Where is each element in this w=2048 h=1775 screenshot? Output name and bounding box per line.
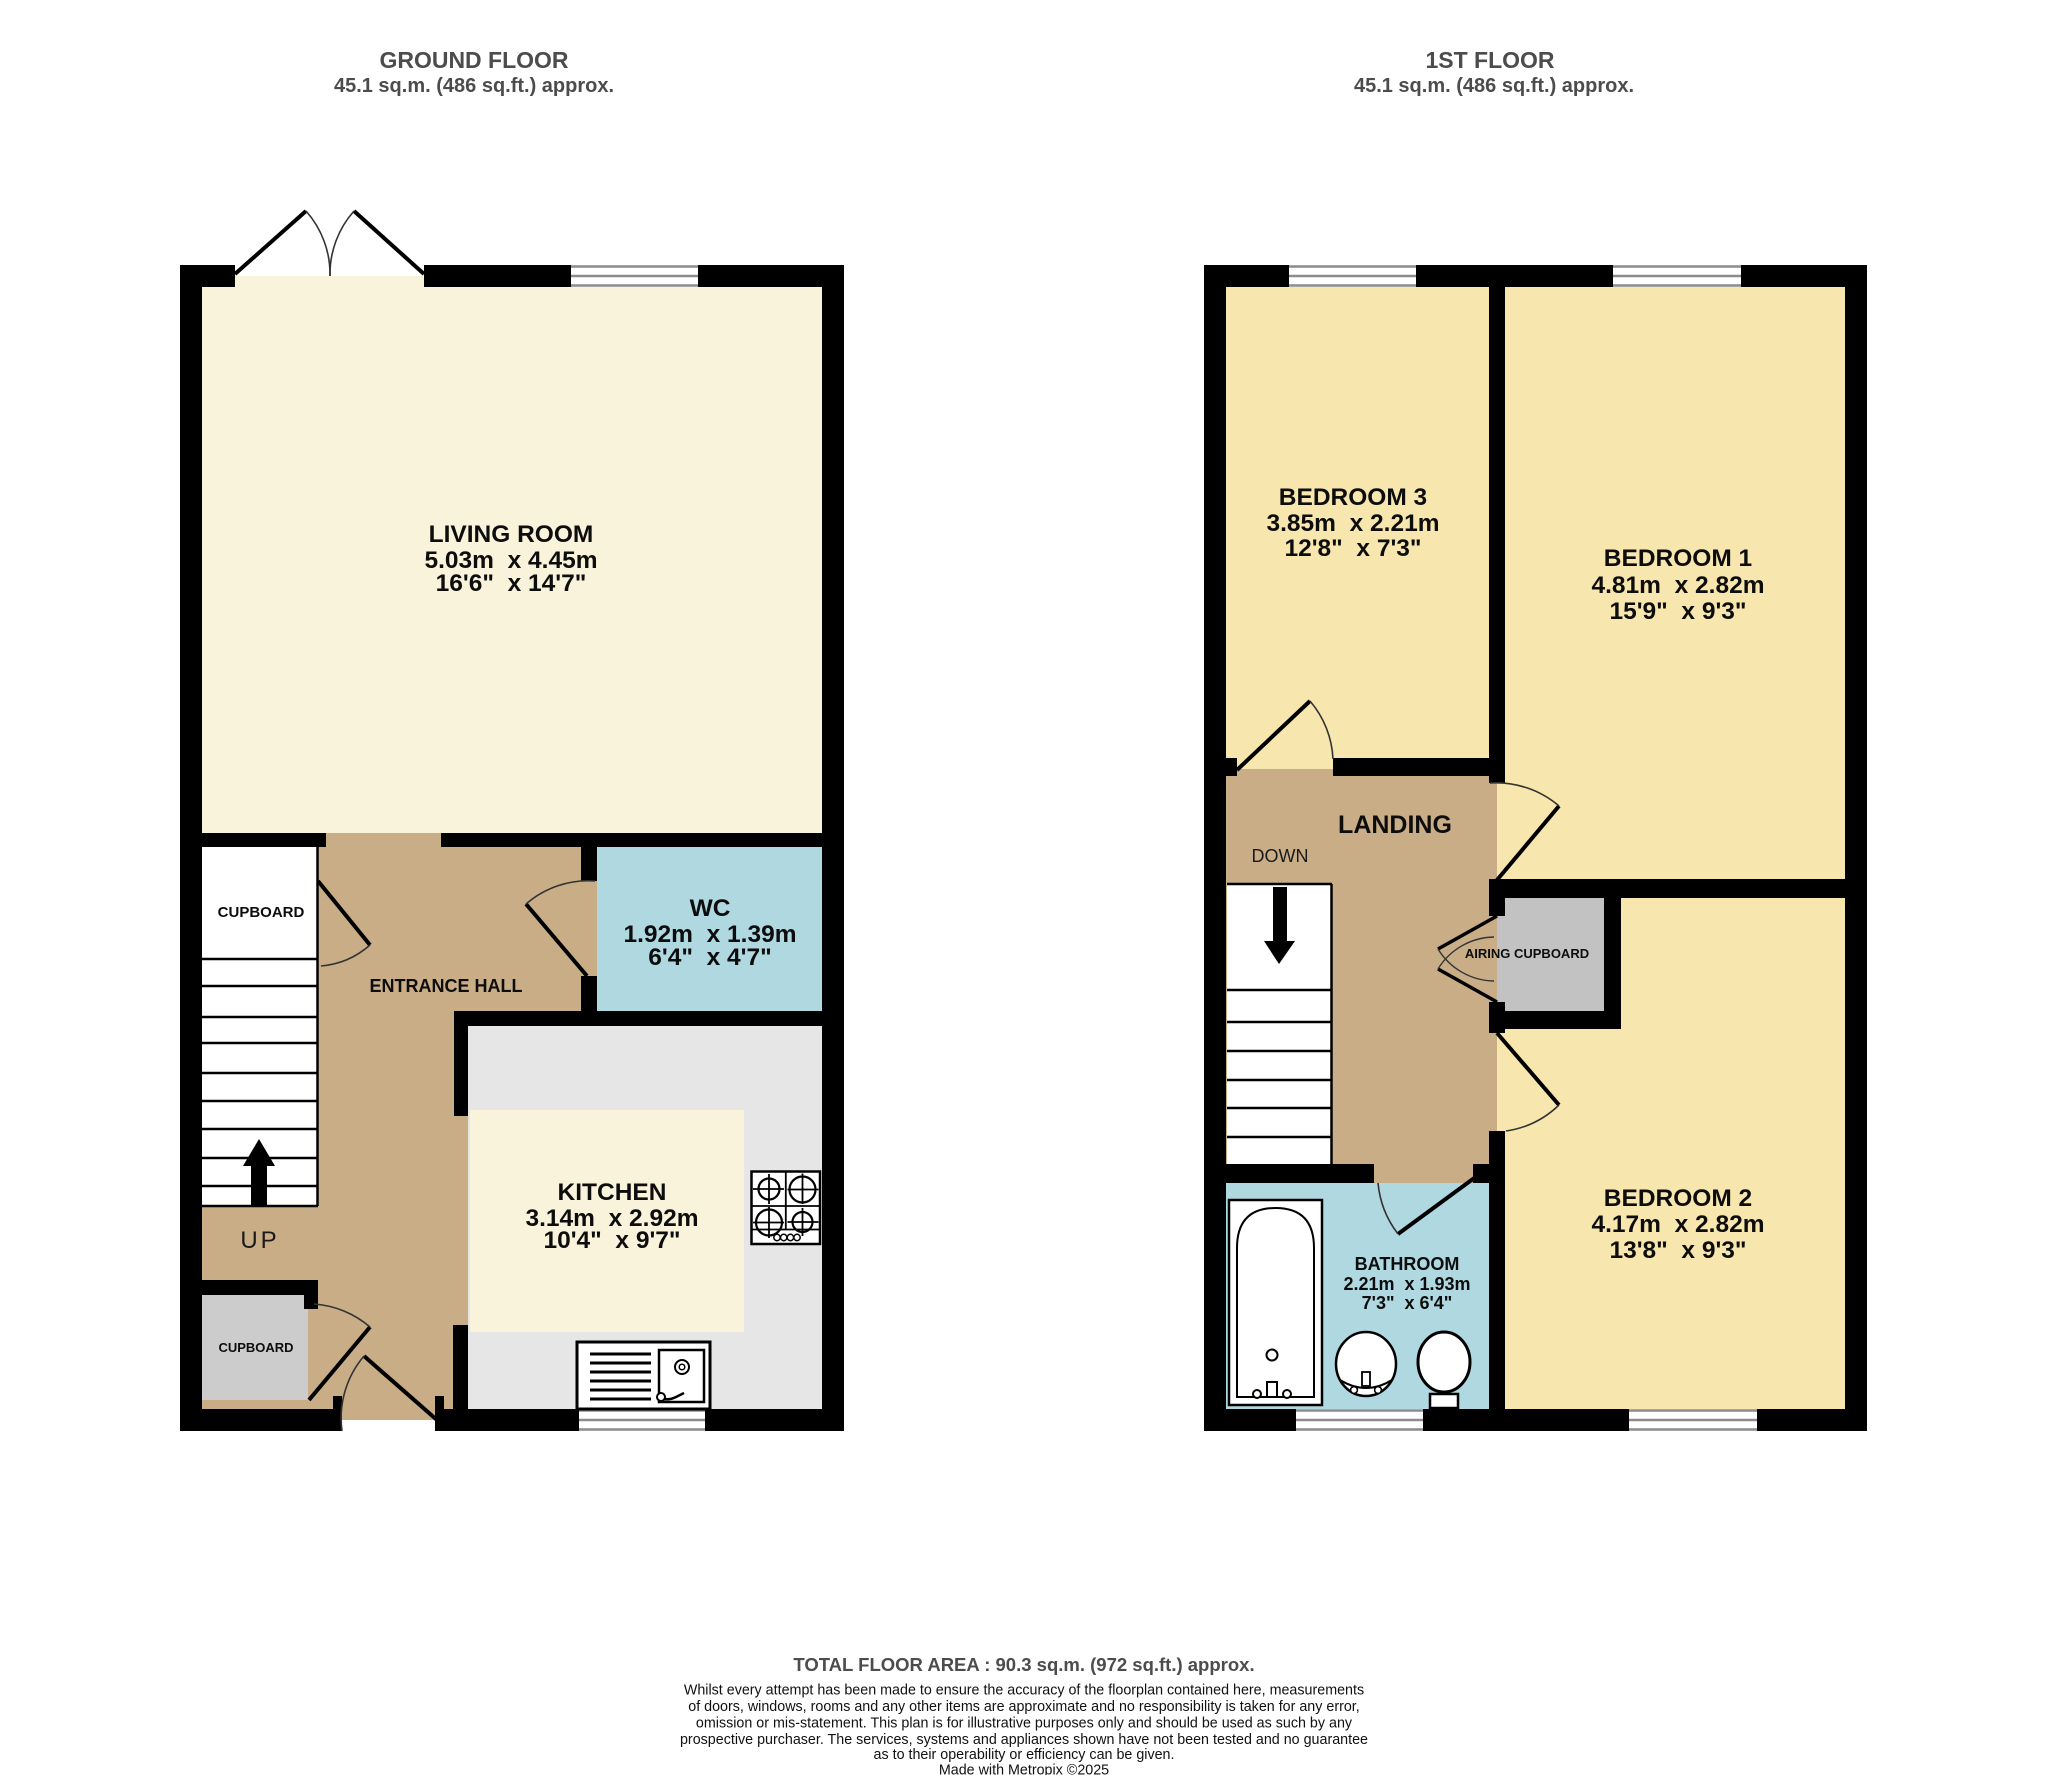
svg-text:45.1 sq.m. (486 sq.ft.) approx: 45.1 sq.m. (486 sq.ft.) approx.: [1354, 75, 1634, 97]
svg-text:UP: UP: [240, 1227, 279, 1254]
svg-text:15'9" x 9'3": 15'9" x 9'3": [1609, 598, 1746, 625]
svg-text:ENTRANCE HALL: ENTRANCE HALL: [370, 976, 523, 996]
svg-text:TOTAL FLOOR AREA : 90.3 sq.m.: TOTAL FLOOR AREA : 90.3 sq.m. (972 sq.ft…: [793, 1654, 1254, 1675]
svg-text:13'8" x 9'3": 13'8" x 9'3": [1609, 1237, 1746, 1264]
svg-text:1ST FLOOR: 1ST FLOOR: [1425, 47, 1554, 73]
svg-text:LANDING: LANDING: [1338, 811, 1452, 839]
svg-text:6'4" x 4'7": 6'4" x 4'7": [648, 944, 771, 971]
svg-text:of doors, windows, rooms and a: of doors, windows, rooms and any other i…: [688, 1699, 1360, 1715]
svg-text:omission or mis-statement. Thi: omission or mis-statement. This plan is …: [696, 1716, 1353, 1732]
svg-text:prospective purchaser. The ser: prospective purchaser. The services, sys…: [680, 1732, 1368, 1748]
svg-text:DOWN: DOWN: [1252, 846, 1309, 866]
svg-text:as to their operability or eff: as to their operability or efficiency ca…: [874, 1747, 1175, 1763]
svg-text:3.85m x 2.21m: 3.85m x 2.21m: [1267, 510, 1440, 537]
svg-text:BATHROOM: BATHROOM: [1355, 1254, 1460, 1274]
svg-text:Whilst every attempt has been: Whilst every attempt has been made to en…: [684, 1683, 1364, 1699]
svg-text:2.21m x 1.93m: 2.21m x 1.93m: [1343, 1274, 1470, 1294]
svg-text:45.1 sq.m. (486 sq.ft.) approx: 45.1 sq.m. (486 sq.ft.) approx.: [334, 75, 614, 97]
svg-text:CUPBOARD: CUPBOARD: [218, 1340, 293, 1355]
svg-text:WC: WC: [690, 895, 731, 922]
svg-text:4.81m x 2.82m: 4.81m x 2.82m: [1592, 572, 1765, 599]
svg-text:Made with Metropix ©2025: Made with Metropix ©2025: [939, 1762, 1109, 1775]
svg-text:CUPBOARD: CUPBOARD: [218, 904, 305, 921]
svg-text:BEDROOM 2: BEDROOM 2: [1604, 1185, 1752, 1212]
svg-text:AIRING CUPBOARD: AIRING CUPBOARD: [1465, 946, 1589, 961]
svg-text:7'3" x 6'4": 7'3" x 6'4": [1362, 1293, 1453, 1313]
svg-text:LIVING ROOM: LIVING ROOM: [429, 521, 594, 548]
svg-text:BEDROOM 3: BEDROOM 3: [1279, 484, 1427, 511]
svg-text:16'6" x 14'7": 16'6" x 14'7": [436, 570, 587, 597]
svg-text:10'4" x 9'7": 10'4" x 9'7": [543, 1227, 680, 1254]
svg-text:KITCHEN: KITCHEN: [558, 1179, 667, 1206]
svg-text:BEDROOM 1: BEDROOM 1: [1604, 545, 1752, 572]
svg-text:GROUND FLOOR: GROUND FLOOR: [379, 47, 568, 73]
svg-text:4.17m x 2.82m: 4.17m x 2.82m: [1592, 1211, 1765, 1238]
svg-text:12'8" x 7'3": 12'8" x 7'3": [1284, 535, 1421, 562]
